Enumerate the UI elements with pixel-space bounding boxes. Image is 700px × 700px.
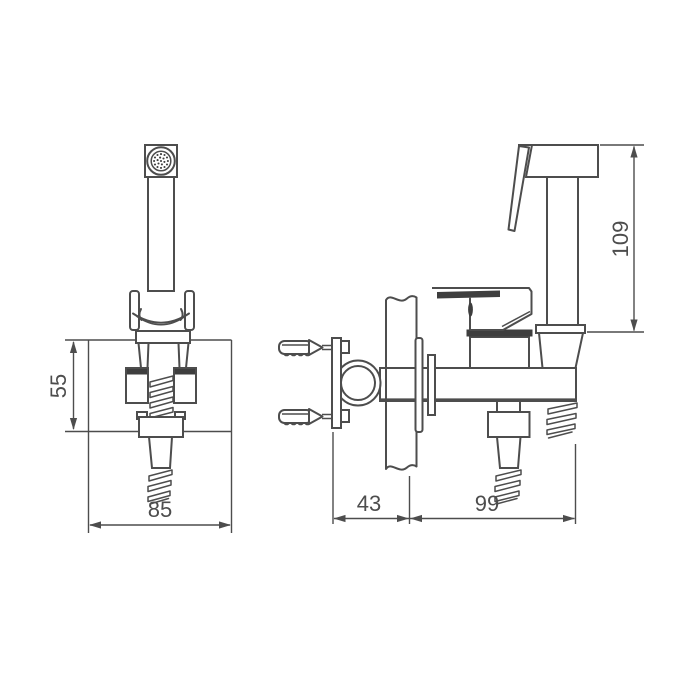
sprayer-head-side [526,145,598,177]
hose-fitting [149,437,172,468]
arrowhead-left-99 [410,515,422,522]
holder-right-wall [185,291,194,330]
arrowhead-down [630,320,637,332]
holder-collar [136,331,190,343]
hose-nut [139,417,183,437]
lever-slot [468,303,473,317]
valve-body-bar [380,368,576,401]
wall-anchor-bottom [279,409,332,425]
sprayer-side [509,145,599,325]
anchor-tip [309,340,323,355]
holder-left-wall [130,291,139,330]
dimension-label-99: 99 [475,491,499,516]
dimension-label-55: 55 [46,374,71,398]
arrowhead-up [630,146,637,158]
outlet-connector-side [488,401,530,468]
escutcheon-plate [416,338,423,432]
arrowhead-right-43 [397,515,409,522]
holder-left-leg [139,343,149,368]
lever-blade-underside [437,291,500,299]
holder-lip-arc-outer [133,314,189,323]
wall-anchor-top [279,340,332,356]
holder-bracket-front [126,291,196,403]
side-view: 109 43 99 [279,145,644,524]
holder-left-ear-cap [127,369,147,375]
arrowhead-right [219,521,231,528]
arrowhead-down [70,418,77,430]
hose-coil-side-right [547,403,577,438]
anchor-tip [309,409,323,424]
anchor-plug [279,341,312,354]
plate-tab-bottom [341,410,349,422]
supply-flange [336,361,381,406]
wall-break-bottom [386,465,417,469]
arrowhead-right-99 [563,515,575,522]
hose-connector-front [137,412,185,468]
flange-inner-ring [341,366,375,400]
cone-body [539,333,583,368]
hose-coil-upper-front [150,376,173,418]
dimension-label-43: 43 [357,491,381,516]
outlet-neck [497,401,520,412]
dimension-55: 55 [46,341,77,430]
cone-flare [536,325,585,333]
front-view: 55 85 [46,145,232,533]
sprayer-trigger [509,146,530,231]
sprayer-handle-side [547,177,578,325]
outlet-fitting [497,437,521,468]
plate-tab-top [341,341,349,353]
bidet-sprayer-dimension-drawing: 55 85 [0,0,700,700]
valve-body [380,368,576,401]
anchor-plug [279,410,312,423]
arrowhead-up [70,341,77,353]
outlet-nut [488,412,530,437]
wall-break-top [386,296,417,300]
arrowhead-left [89,521,101,528]
technical-drawing-canvas: 55 85 [0,0,700,700]
dimension-label-109: 109 [608,221,633,258]
holder-right-leg [179,343,189,368]
holder-cone-side [536,325,585,368]
pipe-sleeve [428,355,435,415]
mixer-assembly [432,288,533,368]
lever-chamfer-line [502,312,530,327]
mixer-body [470,337,529,368]
holder-right-ear-cap [175,369,195,375]
arrowhead-left-43 [334,515,346,522]
dimension-43-99: 43 99 [333,432,576,524]
sprayer-head-front [145,145,177,177]
sprayer-handle-front [148,177,174,291]
plate-body [332,338,341,428]
